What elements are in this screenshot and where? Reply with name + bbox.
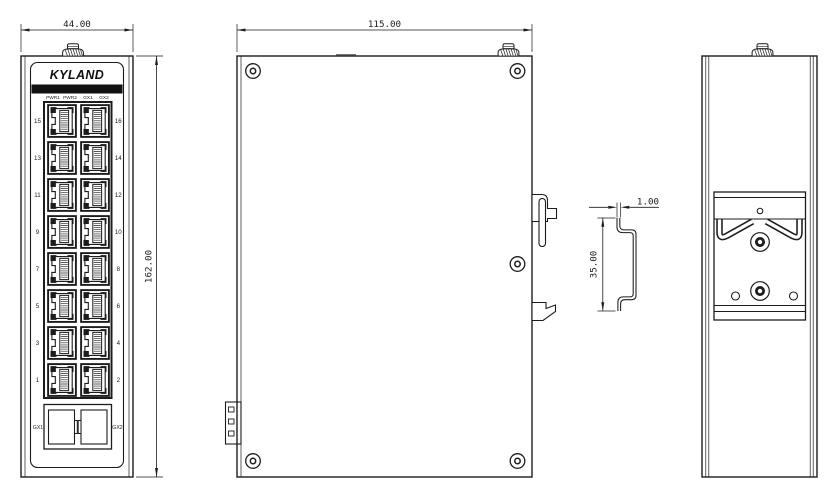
rj45-port xyxy=(81,253,109,285)
rj45-port xyxy=(48,327,76,359)
rj45-port xyxy=(48,364,76,396)
rj45-port xyxy=(81,142,109,174)
sfp-latch-right xyxy=(78,421,81,434)
front-height-dimension: 162.00 xyxy=(136,56,163,477)
terminal-screw xyxy=(229,419,235,424)
rj45-port xyxy=(48,105,76,137)
rail-height-dimension: 35.00 xyxy=(589,218,616,311)
port-number: 13 xyxy=(34,155,41,162)
sfp-slot-gx1 xyxy=(49,410,75,444)
dim-arrow-left xyxy=(21,29,30,32)
sfp-label-gx2: GX2 xyxy=(112,425,122,431)
dim-arrow-bottom xyxy=(155,468,158,477)
din-clip-latch xyxy=(532,303,556,321)
port-number: 1 xyxy=(36,377,40,384)
port-number: 8 xyxy=(117,266,121,273)
port-number: 11 xyxy=(34,192,41,199)
rj45-port xyxy=(48,253,76,285)
port-number: 6 xyxy=(117,303,121,310)
rj45-port xyxy=(81,290,109,322)
technical-drawing-canvas: 44.00 KYLAND PWR1 PWR2 GX1 GX2 xyxy=(0,0,838,491)
drawing-root: 44.00 KYLAND PWR1 PWR2 GX1 GX2 xyxy=(21,19,817,477)
port-number: 15 xyxy=(34,118,41,125)
terminal-screw xyxy=(229,407,235,412)
din-clip-side xyxy=(532,195,557,321)
port-number: 4 xyxy=(117,340,121,347)
rail-height-dim-text: 35.00 xyxy=(589,251,600,279)
led-label-gx2: GX2 xyxy=(99,95,109,101)
rj45-port xyxy=(81,216,109,248)
grounding-stud-front xyxy=(63,44,84,56)
dim-arrow-top xyxy=(155,56,158,65)
rj45-port xyxy=(81,105,109,137)
side-body-outline xyxy=(237,56,532,477)
port-number: 2 xyxy=(117,377,121,384)
led-label-pwr1: PWR1 xyxy=(46,95,60,101)
grounding-stud-back xyxy=(752,44,773,56)
rj45-port xyxy=(48,179,76,211)
brand-logo: KYLAND xyxy=(50,68,104,82)
rj45-port xyxy=(48,290,76,322)
rail-thickness-dimension: 1.00 xyxy=(589,197,659,218)
dim-arrow-right xyxy=(524,29,533,32)
port-number: 10 xyxy=(115,229,122,236)
din-rail-profile-detail: 1.00 35.00 xyxy=(589,197,660,312)
port-number: 3 xyxy=(36,340,40,347)
dim-arrow-top xyxy=(601,218,604,227)
terminal-screw xyxy=(229,431,235,436)
side-width-dimension: 115.00 xyxy=(237,19,532,52)
front-panel-black-bar xyxy=(32,85,123,94)
port-number: 9 xyxy=(36,229,40,236)
grounding-stud-side xyxy=(498,44,519,56)
dim-arrow-right xyxy=(621,206,630,209)
port-number: 12 xyxy=(115,192,122,199)
din-mount-bracket xyxy=(714,192,806,320)
sfp-slot-gx2 xyxy=(81,410,107,444)
led-label-gx1: GX1 xyxy=(83,95,93,101)
rail-profile-outline xyxy=(617,218,636,311)
front-height-dim-text: 162.00 xyxy=(144,250,155,283)
rj45-port xyxy=(48,216,76,248)
port-number: 5 xyxy=(36,303,40,310)
din-clip-spring-pin xyxy=(539,199,546,247)
dim-arrow-bottom xyxy=(601,302,604,311)
side-view: 115.00 xyxy=(226,19,557,477)
rail-thickness-dim-text: 1.00 xyxy=(637,197,659,208)
led-label-pwr2: PWR2 xyxy=(63,95,77,101)
dim-arrow-right xyxy=(125,29,134,32)
front-view: 44.00 KYLAND PWR1 PWR2 GX1 GX2 xyxy=(21,19,163,477)
rj45-port xyxy=(81,364,109,396)
rj45-port xyxy=(81,179,109,211)
back-view xyxy=(702,44,817,477)
port-number: 14 xyxy=(115,155,122,162)
port-number: 7 xyxy=(36,266,40,273)
technical-drawing-page: 44.00 KYLAND PWR1 PWR2 GX1 GX2 xyxy=(0,0,838,491)
rj45-port xyxy=(81,327,109,359)
side-width-dim-text: 115.00 xyxy=(368,19,401,30)
port-number: 16 xyxy=(115,118,122,125)
rj45-port xyxy=(48,142,76,174)
dim-arrow-left xyxy=(608,206,617,209)
sfp-label-gx1: GX1 xyxy=(33,425,43,431)
sfp-latch-left xyxy=(75,421,78,434)
front-width-dim-text: 44.00 xyxy=(63,19,91,30)
dim-arrow-left xyxy=(237,29,246,32)
